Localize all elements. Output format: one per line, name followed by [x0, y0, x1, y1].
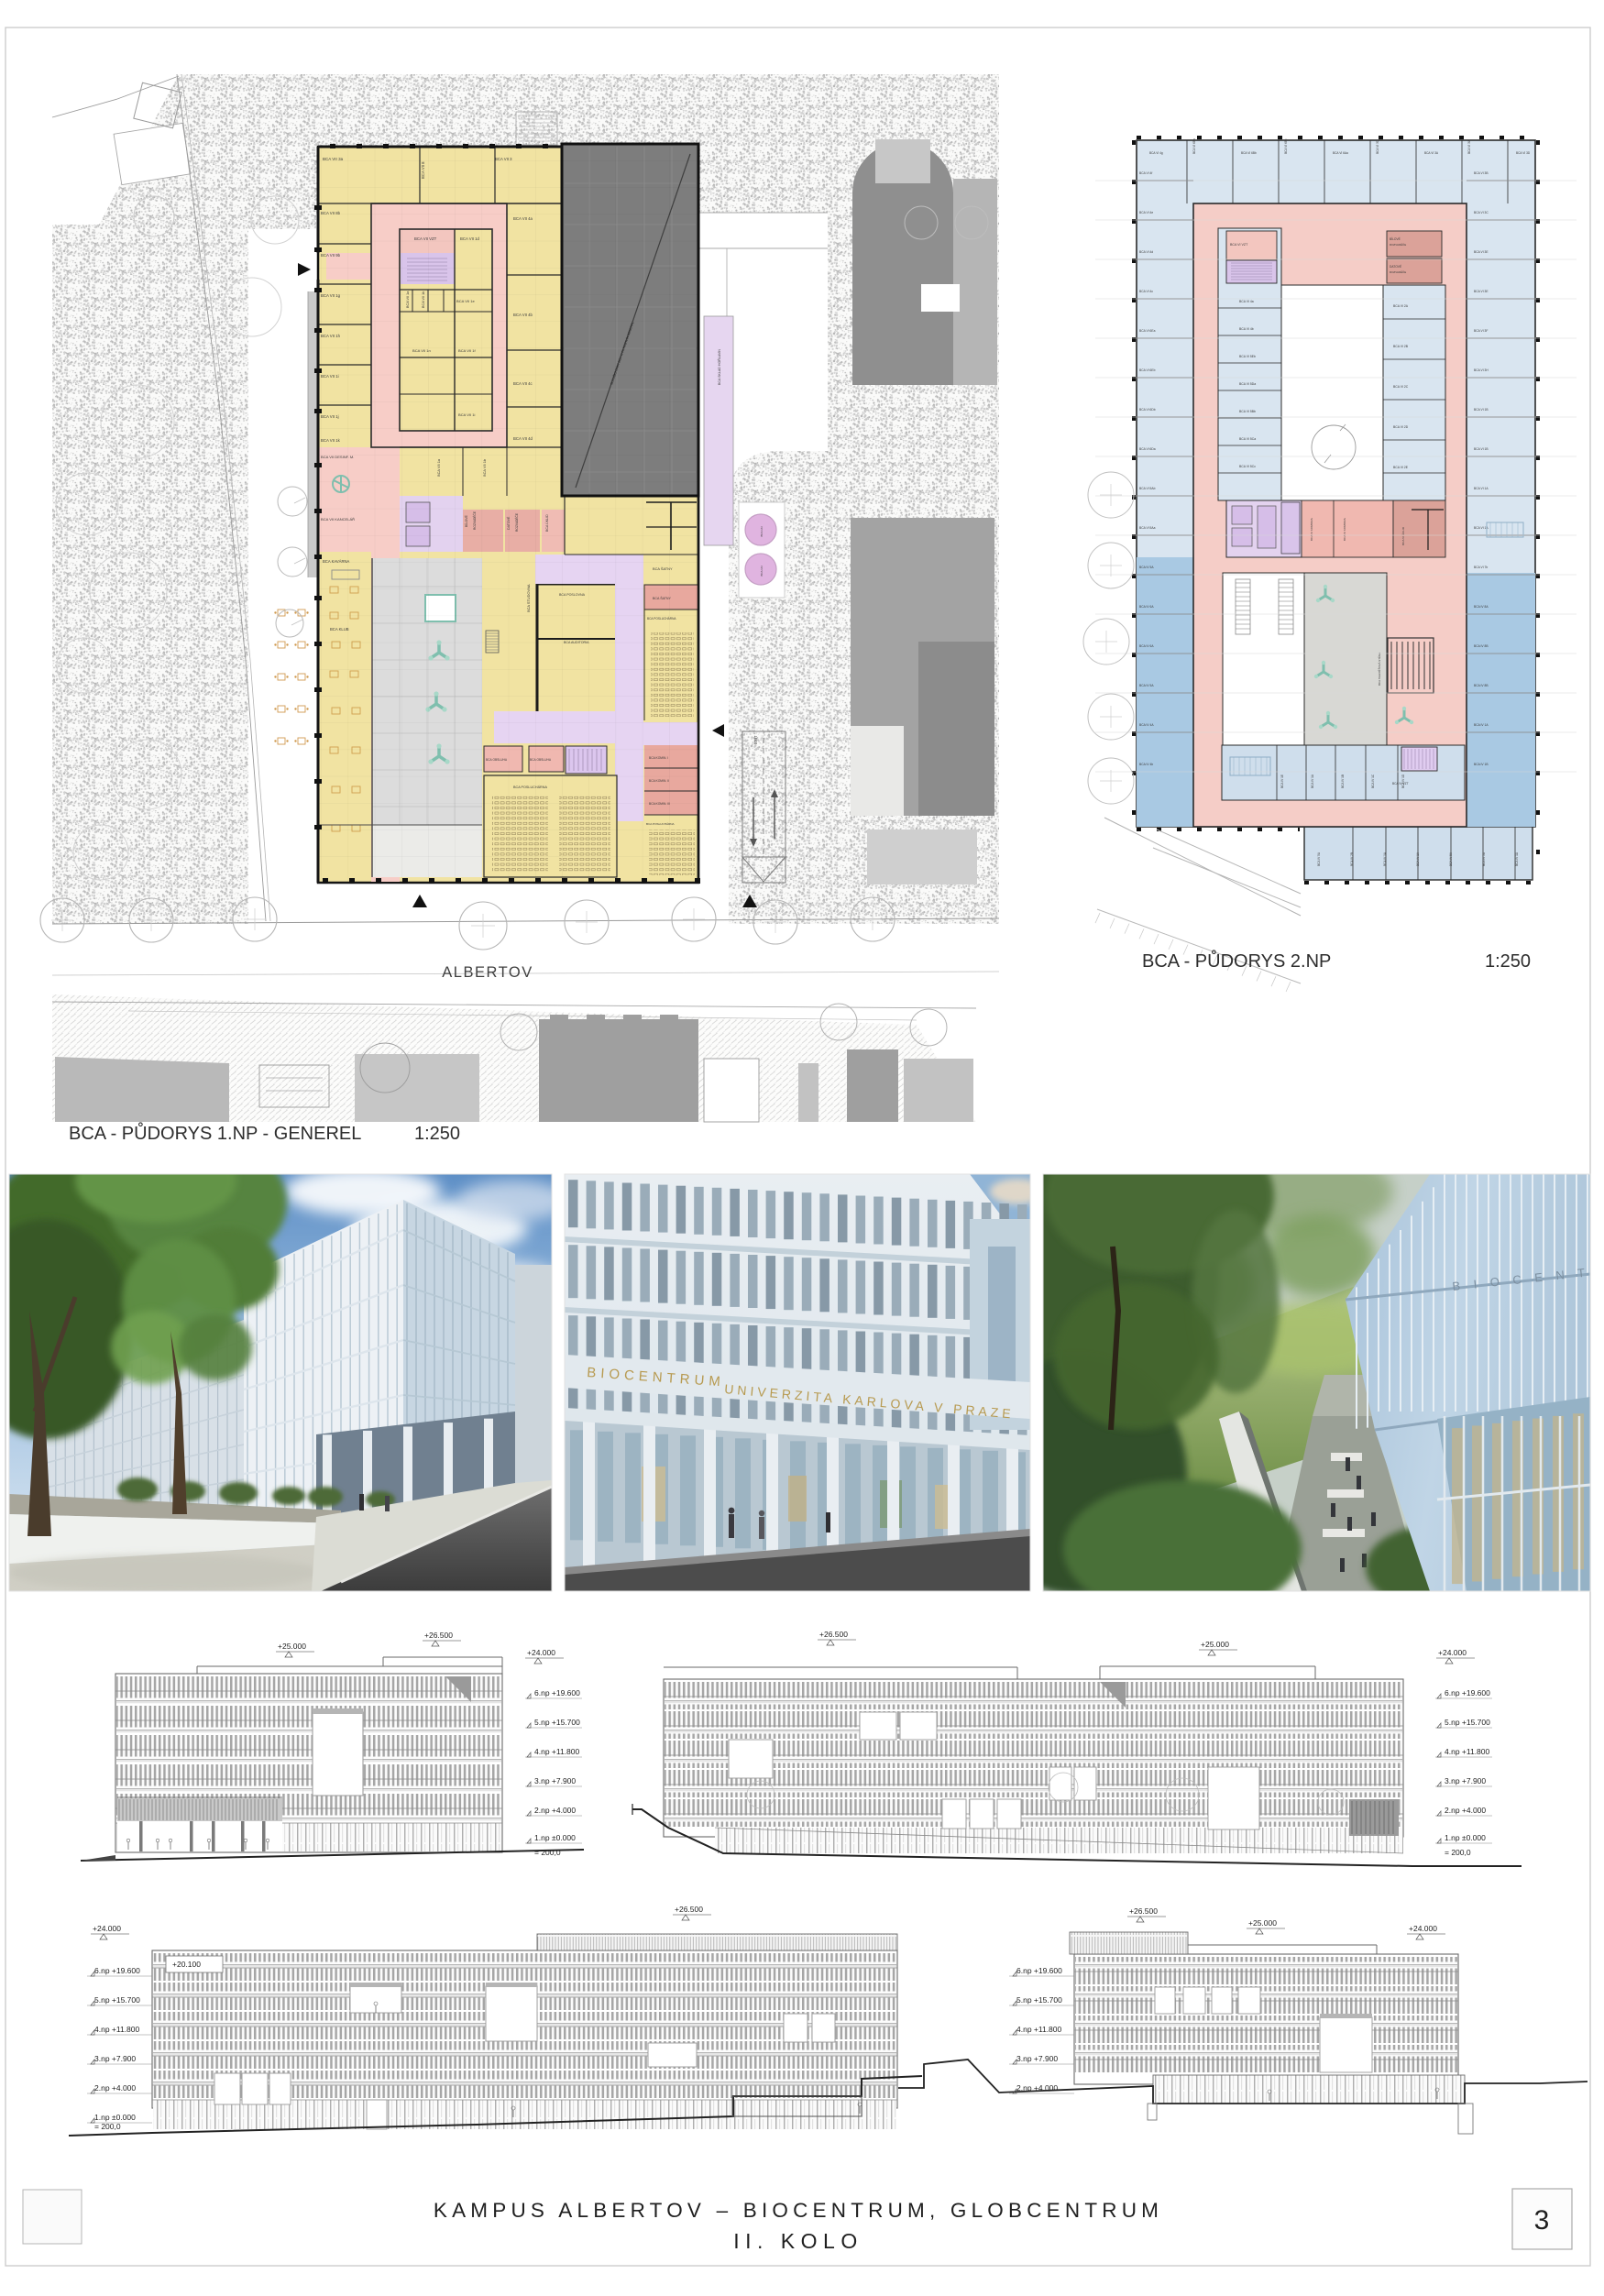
svg-text:BCA IV 1A: BCA IV 1A: [1383, 851, 1387, 866]
svg-text:4.np +11.800: 4.np +11.800: [534, 1747, 580, 1756]
svg-text:BCA VI 4d: BCA VI 4d: [1139, 250, 1153, 254]
svg-text:BCA IV 2B: BCA IV 2B: [1350, 852, 1354, 866]
svg-text:BCA VI 1B: BCA VI 1B: [1474, 447, 1489, 451]
svg-text:+24.000: +24.000: [1409, 1924, 1437, 1933]
svg-text:BCA IV 1A: BCA IV 1A: [1515, 851, 1519, 866]
svg-text:= 200,0: = 200,0: [534, 1848, 561, 1857]
svg-text:BCA IV 1C: BCA IV 1C: [1371, 774, 1375, 788]
svg-text:3.np +7.900: 3.np +7.900: [94, 2054, 136, 2063]
svg-text:BCA IV 8B: BCA IV 8B: [1474, 644, 1489, 648]
svg-text:1.np ±0.000: 1.np ±0.000: [534, 1833, 576, 1842]
svg-text:BCA UN: BCA UN: [760, 566, 764, 577]
svg-text:BCA VI 2E: BCA VI 2E: [1393, 466, 1409, 469]
svg-text:BCA VI 6Bb: BCA VI 6Bb: [1241, 151, 1257, 155]
svg-text:BCA VI 6Ea: BCA VI 6Ea: [1139, 329, 1156, 333]
svg-text:BCA VI 5Ab: BCA VI 5Ab: [1139, 487, 1156, 490]
svg-text:BCA VI 6Db: BCA VI 6Db: [1139, 408, 1156, 412]
svg-text:BCA VI 5Aa: BCA VI 5Aa: [1139, 526, 1156, 530]
svg-text:BCA VI 4a: BCA VI 4a: [1239, 300, 1254, 303]
svg-text:ROZVADĚČE: ROZVADĚČE: [1390, 242, 1406, 247]
svg-text:1:250: 1:250: [414, 1124, 460, 1144]
svg-text:2.np +4.000: 2.np +4.000: [1445, 1806, 1486, 1815]
svg-text:BCA VI 2D: BCA VI 2D: [1393, 425, 1409, 429]
svg-text:BCA VI KOMORA: BCA VI KOMORA: [1310, 517, 1313, 541]
svg-text:BCA VI 6Ba: BCA VI 6Ba: [1192, 138, 1196, 154]
svg-text:BCA VI 3A: BCA VI 3A: [1467, 139, 1471, 154]
svg-text:4.np +11.800: 4.np +11.800: [94, 2025, 140, 2034]
svg-text:5.np +15.700: 5.np +15.700: [94, 1995, 140, 2005]
svg-text:BCA VI ÚKLID: BCA VI ÚKLID: [1401, 526, 1405, 545]
svg-text:EXIT: EXIT: [753, 735, 758, 744]
svg-text:= 200,0: = 200,0: [1445, 1848, 1471, 1857]
svg-text:BCA IV 1E: BCA IV 1E: [1280, 774, 1284, 788]
svg-text:BCA UN: BCA UN: [760, 527, 764, 537]
svg-text:+24.000: +24.000: [527, 1648, 555, 1657]
svg-text:BCA VI 3H: BCA VI 3H: [1474, 368, 1489, 372]
svg-text:= 200,0: = 200,0: [94, 2122, 121, 2131]
svg-text:2.np +4.000: 2.np +4.000: [94, 2083, 136, 2093]
svg-text:BCA - PŮDORYS 1.NP - GENEREL: BCA - PŮDORYS 1.NP - GENEREL: [69, 1122, 361, 1144]
svg-text:II. KOLO: II. KOLO: [733, 2229, 862, 2253]
svg-text:BCA IV 1A: BCA IV 1A: [1416, 851, 1420, 866]
svg-text:3: 3: [1534, 2205, 1550, 2236]
svg-text:BCA VI 4e: BCA VI 4e: [1139, 211, 1153, 214]
svg-text:BCA VI 3E: BCA VI 3E: [1474, 290, 1489, 293]
svg-text:BCA VI 4c: BCA VI 4c: [1139, 290, 1153, 293]
svg-text:1.np ±0.000: 1.np ±0.000: [1445, 1833, 1486, 1842]
svg-text:+20.100: +20.100: [172, 1960, 201, 1969]
svg-text:BCA SKLAD HOŘLAVIN: BCA SKLAD HOŘLAVIN: [717, 349, 721, 385]
svg-text:+25.000: +25.000: [1248, 1918, 1277, 1928]
svg-text:BCA IV 5A: BCA IV 5A: [1139, 684, 1154, 687]
svg-text:BCA VI 5Ca: BCA VI 5Ca: [1239, 437, 1256, 441]
svg-text:1:250: 1:250: [1485, 951, 1531, 972]
svg-text:6.np +19.600: 6.np +19.600: [94, 1966, 140, 1975]
svg-text:5.np +15.700: 5.np +15.700: [534, 1718, 580, 1727]
svg-text:6.np +19.600: 6.np +19.600: [1016, 1966, 1062, 1975]
svg-text:BCA VI 5Da: BCA VI 5Da: [1239, 382, 1256, 386]
svg-text:+25.000: +25.000: [278, 1642, 306, 1651]
svg-text:BCA HLEDIŠŤOVÁ STĚNA: BCA HLEDIŠŤOVÁ STĚNA: [1377, 653, 1381, 686]
svg-text:+26.500: +26.500: [424, 1631, 453, 1640]
svg-text:BCA VI 5Cc: BCA VI 5Cc: [1239, 465, 1256, 468]
svg-text:2.np +4.000: 2.np +4.000: [534, 1806, 576, 1815]
svg-text:BCA VI 3A: BCA VI 3A: [1424, 151, 1439, 155]
svg-text:KAMPUS ALBERTOV – BIOCENTRUM: KAMPUS ALBERTOV – BIOCENTRUM, GLOBCENTRU…: [434, 2199, 1163, 2222]
svg-text:+26.500: +26.500: [819, 1630, 848, 1639]
svg-text:BCA IV 5A: BCA IV 5A: [1482, 851, 1486, 866]
svg-text:+25.000: +25.000: [1201, 1640, 1229, 1649]
svg-text:BCA VI 6Eb: BCA VI 6Eb: [1139, 368, 1156, 372]
svg-text:BCA IV 5A: BCA IV 5A: [1317, 851, 1321, 866]
svg-text:BCA VI 3C: BCA VI 3C: [1474, 211, 1489, 214]
svg-text:BCA VI 4b: BCA VI 4b: [1239, 327, 1254, 331]
svg-text:BCA VI 4f: BCA VI 4f: [1139, 171, 1152, 175]
svg-text:BCA IV 8B: BCA IV 8B: [1474, 684, 1489, 687]
svg-text:BCA VI 3D: BCA VI 3D: [1376, 139, 1379, 154]
svg-text:BCA IV 6A: BCA IV 6A: [1139, 605, 1154, 609]
svg-text:5.np +15.700: 5.np +15.700: [1016, 1995, 1062, 2005]
svg-text:BCA VI 3D: BCA VI 3D: [1516, 151, 1531, 155]
svg-text:BCA VI 6Aa: BCA VI 6Aa: [1333, 151, 1348, 155]
svg-text:BCA IV 1A: BCA IV 1A: [1311, 774, 1314, 788]
svg-text:BCA IV 8A: BCA IV 8A: [1474, 605, 1489, 609]
svg-text:4.np +11.800: 4.np +11.800: [1445, 1747, 1490, 1756]
svg-text:+26.500: +26.500: [675, 1905, 703, 1914]
svg-text:BCA IV 6A: BCA IV 6A: [1139, 644, 1154, 648]
svg-text:DATOVÉ: DATOVÉ: [1390, 264, 1402, 269]
svg-text:BCA IV 1B: BCA IV 1B: [1341, 774, 1345, 788]
svg-text:BCA IV 1B: BCA IV 1B: [1474, 763, 1489, 766]
svg-text:+26.500: +26.500: [1129, 1906, 1158, 1916]
svg-text:BCA VI 4g: BCA VI 4g: [1149, 151, 1163, 155]
svg-text:3.np +7.900: 3.np +7.900: [1016, 2054, 1058, 2063]
svg-text:BCA VI 2C: BCA VI 2C: [1393, 385, 1409, 389]
svg-text:6.np +19.600: 6.np +19.600: [534, 1688, 580, 1697]
svg-text:BCA IV 4A: BCA IV 4A: [1139, 723, 1154, 727]
svg-text:BÍLOVÉ: BÍLOVÉ: [1390, 236, 1401, 241]
svg-text:2.np +4.000: 2.np +4.000: [1016, 2083, 1058, 2093]
svg-text:5.np +15.700: 5.np +15.700: [1445, 1718, 1490, 1727]
svg-text:BCA VI 3B: BCA VI 3B: [1474, 171, 1489, 175]
svg-text:BCA VI 3F: BCA VI 3F: [1474, 329, 1488, 333]
svg-text:BCA VI 2B: BCA VI 2B: [1393, 345, 1409, 348]
svg-text:BCA IV 1A: BCA IV 1A: [1474, 723, 1489, 727]
svg-text:3.np +7.900: 3.np +7.900: [534, 1776, 576, 1785]
svg-text:BCA IV 4b: BCA IV 4b: [1139, 763, 1153, 766]
svg-text:BCA VI 6Da: BCA VI 6Da: [1139, 447, 1156, 451]
svg-text:+24.000: +24.000: [93, 1924, 121, 1933]
svg-text:BCA VI KOMORA: BCA VI KOMORA: [1343, 517, 1346, 541]
svg-text:BCA VI 3E: BCA VI 3E: [1474, 250, 1489, 254]
svg-text:BCA - PŮDORYS 2.NP: BCA - PŮDORYS 2.NP: [1142, 950, 1331, 972]
svg-text:1.np ±0.000: 1.np ±0.000: [94, 2113, 136, 2122]
svg-text:6.np +19.600: 6.np +19.600: [1445, 1688, 1490, 1697]
svg-text:BCA VI 6Bc: BCA VI 6Bc: [1284, 138, 1288, 154]
svg-text:BCA VI 1A: BCA VI 1A: [1474, 487, 1489, 490]
svg-text:ALBERTOV: ALBERTOV: [442, 964, 533, 981]
svg-text:BCA VI 7b: BCA VI 7b: [1474, 566, 1488, 569]
svg-text:BCA VI 5Bb: BCA VI 5Bb: [1239, 410, 1256, 413]
svg-text:BCA VI VZT: BCA VI VZT: [1230, 243, 1248, 247]
svg-text:3.np +7.900: 3.np +7.900: [1445, 1776, 1486, 1785]
svg-text:BCA VI 1B: BCA VI 1B: [1474, 408, 1489, 412]
svg-text:ROZVADĚČE: ROZVADĚČE: [1390, 269, 1406, 274]
svg-text:BCA IV VZT: BCA IV VZT: [1392, 782, 1409, 785]
svg-text:BCA VI 2A: BCA VI 2A: [1393, 304, 1409, 308]
svg-text:BCA VI 5Eb: BCA VI 5Eb: [1239, 355, 1256, 358]
svg-text:BCA IV 5A: BCA IV 5A: [1449, 851, 1453, 866]
svg-text:BCA IV 5A: BCA IV 5A: [1139, 566, 1154, 569]
svg-text:4.np +11.800: 4.np +11.800: [1016, 2025, 1062, 2034]
svg-text:+24.000: +24.000: [1438, 1648, 1467, 1657]
